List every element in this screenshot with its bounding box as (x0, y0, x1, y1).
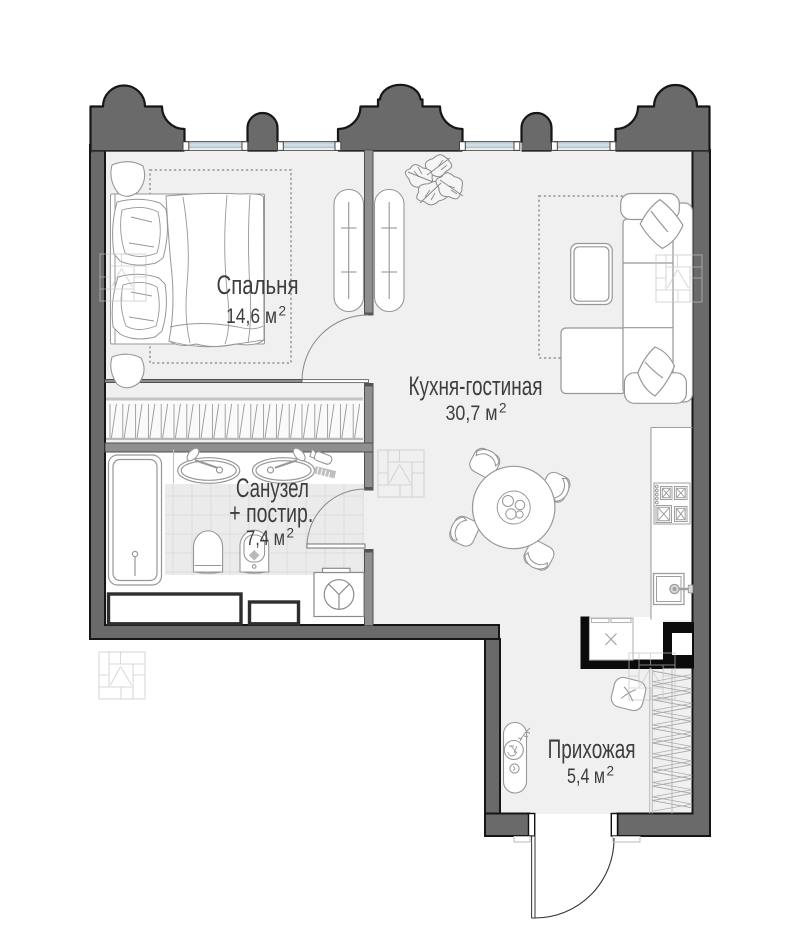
svg-text:Прихожая: Прихожая (548, 734, 636, 764)
svg-text:+ постир.: + постир. (229, 498, 313, 528)
svg-text:30,7 м: 30,7 м (446, 401, 498, 425)
svg-text:7,4 м: 7,4 м (246, 526, 285, 550)
svg-text:14,6 м: 14,6 м (226, 304, 277, 328)
svg-text:Спальня: Спальня (217, 270, 299, 300)
svg-text:2: 2 (499, 401, 507, 416)
svg-text:2: 2 (287, 526, 295, 541)
svg-text:Кухня-гостиная: Кухня-гостиная (409, 371, 543, 401)
svg-text:5,4 м: 5,4 м (567, 764, 605, 788)
svg-text:2: 2 (607, 764, 615, 779)
svg-text:2: 2 (279, 304, 287, 319)
